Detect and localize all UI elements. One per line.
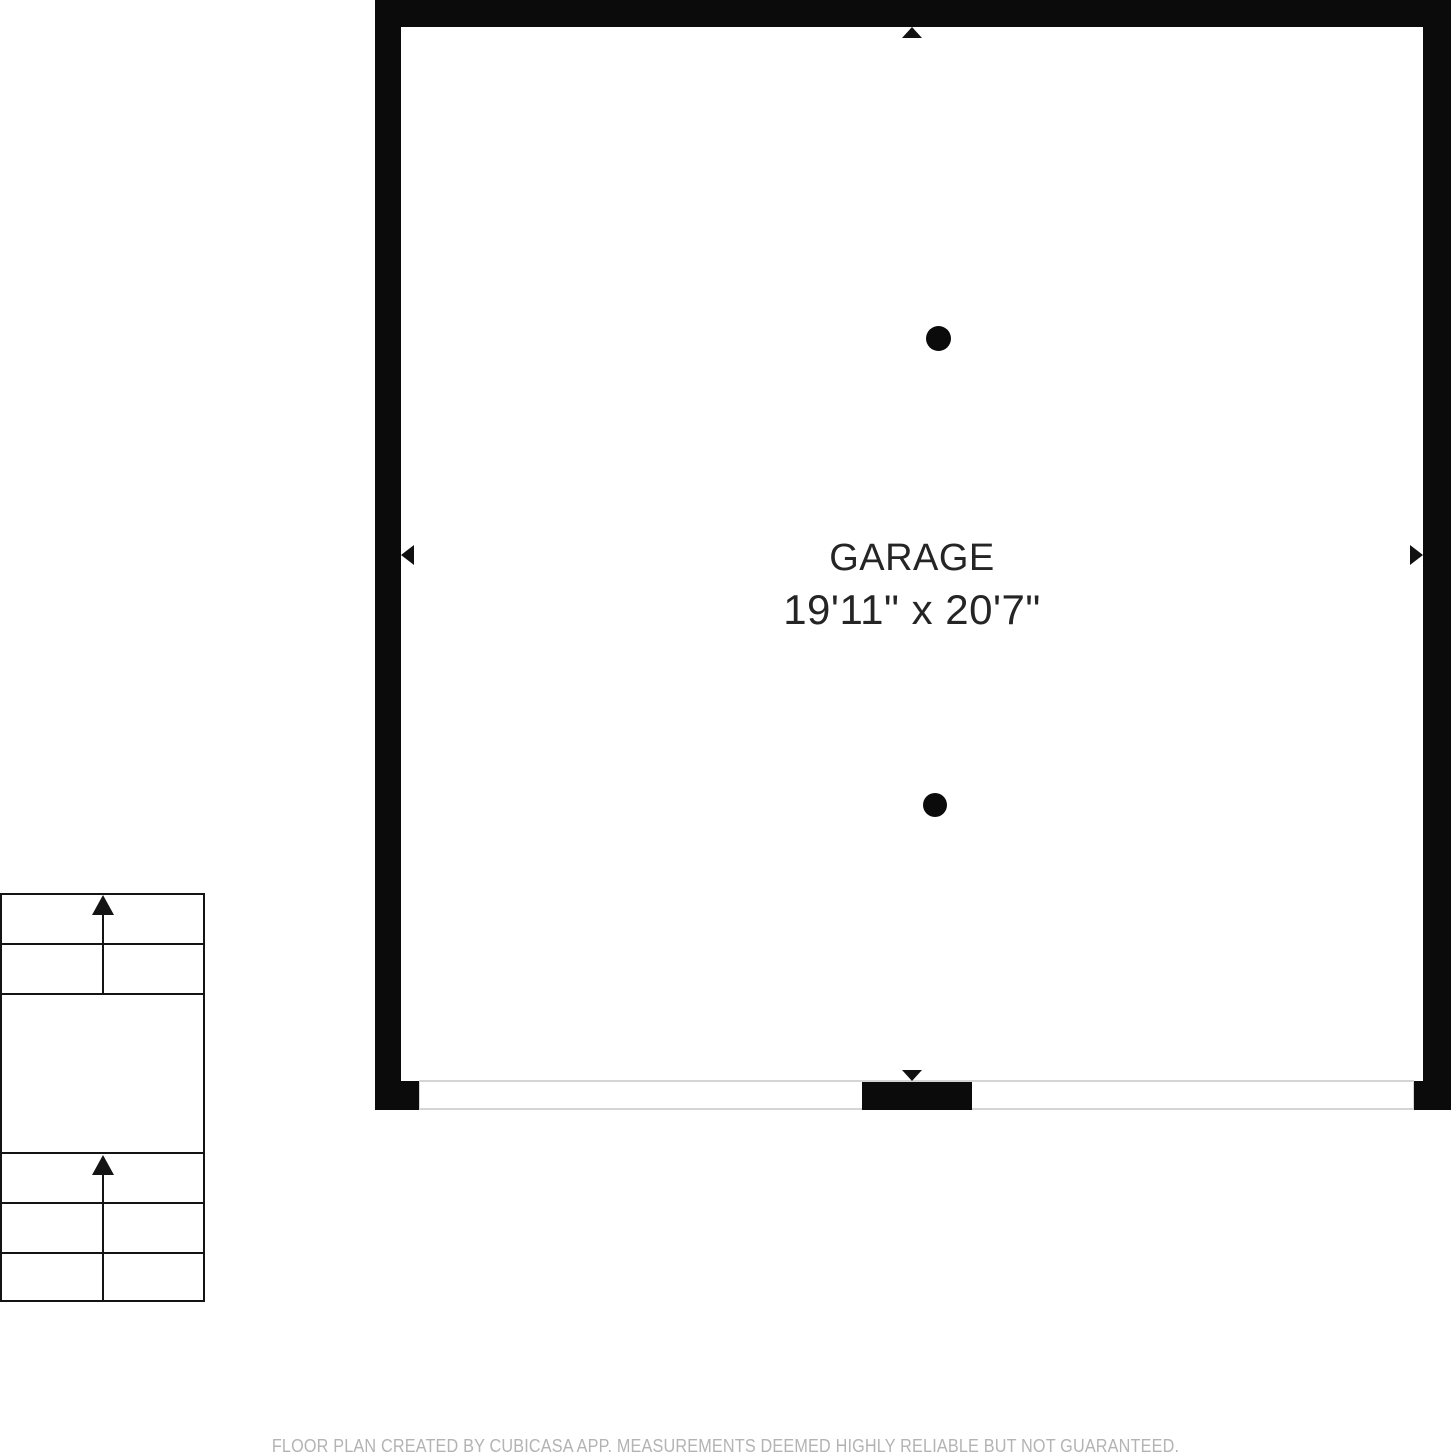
- wall-midpoint-down-arrow-icon: [902, 1070, 922, 1081]
- support-column-dot: [926, 326, 951, 351]
- stair-landing-line: [2, 993, 203, 995]
- room-dimensions: 19'11" x 20'7": [401, 582, 1423, 638]
- garage-wall-top: [375, 0, 1451, 27]
- garage-wall-corner-bottom-right: [1414, 1081, 1451, 1110]
- wall-midpoint-up-arrow-icon: [902, 27, 922, 38]
- stair-direction-line-lower: [102, 1173, 104, 1300]
- stair-up-arrow-icon: [92, 1155, 114, 1175]
- garage-door-center-post: [862, 1082, 972, 1110]
- garage-wall-left: [375, 0, 401, 1082]
- floor-plan-canvas: GARAGE 19'11" x 20'7" FLOOR PLAN CREATED…: [0, 0, 1451, 1453]
- staircase: [0, 893, 205, 1302]
- stair-up-arrow-icon: [92, 895, 114, 915]
- stair-direction-line-upper: [102, 913, 104, 993]
- room-name: GARAGE: [401, 535, 1423, 582]
- room-label: GARAGE 19'11" x 20'7": [401, 535, 1423, 638]
- support-column-dot: [923, 793, 947, 817]
- garage-wall-right: [1423, 0, 1451, 1082]
- garage-wall-corner-bottom-left: [375, 1081, 419, 1110]
- stair-step-line: [2, 1152, 203, 1154]
- footer-disclaimer: FLOOR PLAN CREATED BY CUBICASA APP. MEAS…: [73, 1436, 1379, 1453]
